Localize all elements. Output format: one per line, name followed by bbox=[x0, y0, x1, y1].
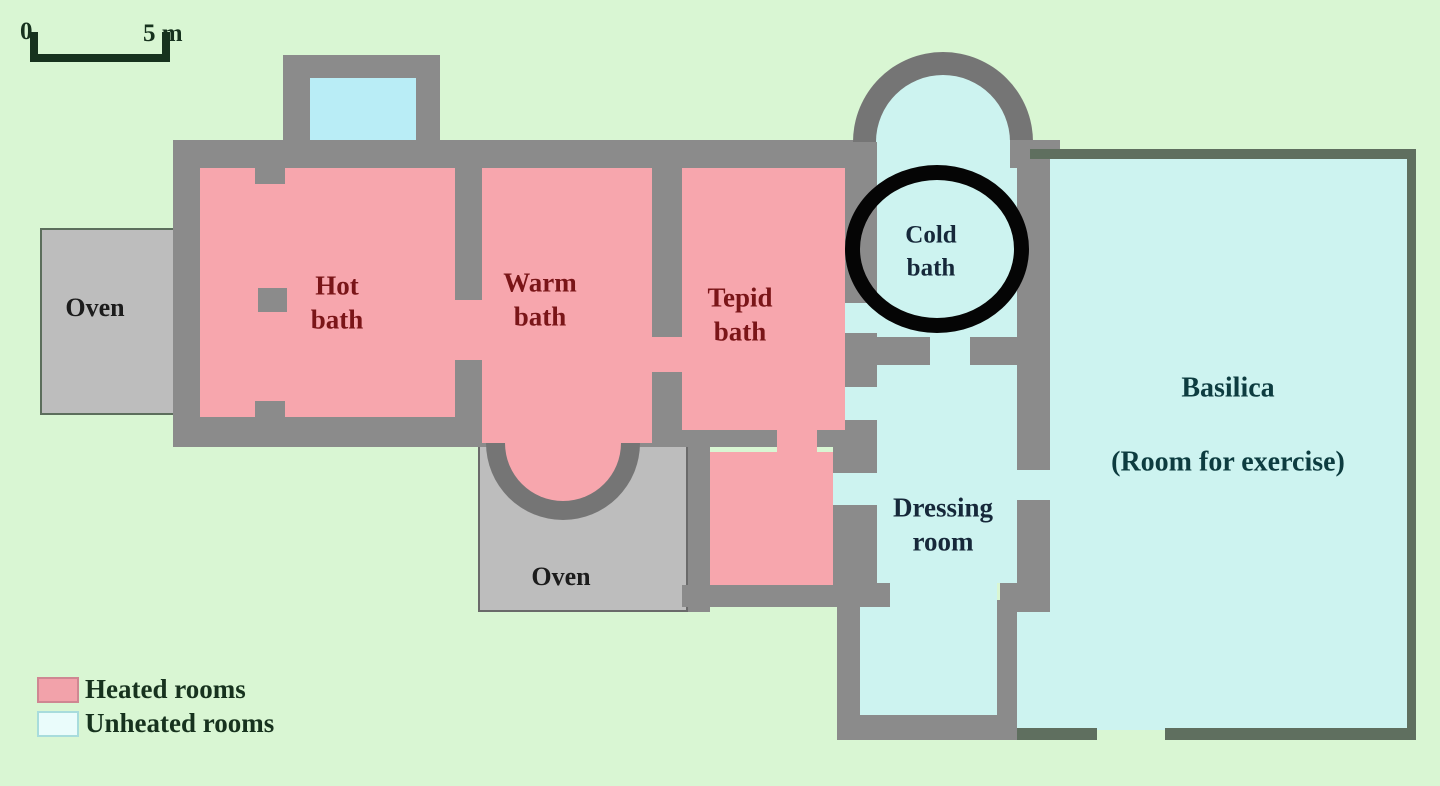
wall-basilica-right bbox=[1407, 149, 1416, 740]
basilica-room-extension bbox=[1017, 612, 1050, 728]
door-warm-to-tepid bbox=[652, 337, 682, 372]
cold-bath-label-line1: Cold bbox=[905, 220, 956, 253]
dressing-room-label-line1: Dressing bbox=[893, 491, 993, 525]
dressing-room-label: Dressing room bbox=[893, 491, 993, 559]
bath-house-floor-plan: Oven Hot bath Warm bath Tepid bath Cold … bbox=[0, 0, 1440, 786]
legend-unheated-label: Unheated rooms bbox=[85, 708, 274, 739]
warm-bath-label-line2: bath bbox=[503, 300, 577, 334]
door-tepid-to-dressing bbox=[845, 387, 877, 420]
door-cold-bath-to-dressing bbox=[930, 337, 970, 365]
legend-swatch-heated bbox=[37, 677, 79, 703]
door-heated-room-to-dressing bbox=[833, 473, 877, 505]
scale-bar-line bbox=[30, 54, 170, 62]
warm-bath-label: Warm bath bbox=[503, 266, 577, 334]
wall-dressing-left bbox=[833, 447, 877, 590]
wall-basilica-bottom-left bbox=[1017, 728, 1097, 740]
tepid-bath-label: Tepid bath bbox=[707, 281, 772, 349]
dressing-room-label-line2: room bbox=[893, 525, 993, 559]
scale-bar-tick-left bbox=[30, 32, 38, 62]
wall-basilica-top bbox=[1030, 149, 1415, 159]
hot-bath-label-line2: bath bbox=[311, 303, 364, 337]
wall-alcove-right bbox=[997, 600, 1017, 715]
scale-bar-tick-right bbox=[162, 32, 170, 62]
door-dressing-to-basilica bbox=[1017, 470, 1050, 500]
hot-bath-wall-stub-top bbox=[255, 168, 285, 184]
wall-basilica-bottom-right bbox=[1165, 728, 1415, 740]
hot-bath-wall-stub-bottom bbox=[255, 401, 285, 417]
oven-bottom-label: Oven bbox=[531, 561, 590, 594]
hot-bath-label: Hot bath bbox=[311, 269, 364, 337]
basilica-label: Basilica bbox=[1181, 371, 1274, 406]
hot-bath-pillar bbox=[258, 288, 287, 312]
tepid-bath-label-line2: bath bbox=[707, 315, 772, 349]
door-tepid-to-heated-room bbox=[777, 430, 817, 454]
wall-dressing-basilica bbox=[1017, 140, 1050, 612]
legend-swatch-unheated bbox=[37, 711, 79, 737]
oven-left-label: Oven bbox=[65, 292, 124, 325]
wall-alcove-bottom bbox=[837, 715, 1017, 740]
legend-heated-label: Heated rooms bbox=[85, 674, 246, 705]
door-hot-to-warm bbox=[455, 300, 482, 360]
cold-bath-label: Cold bath bbox=[905, 220, 956, 285]
warm-bath-label-line1: Warm bbox=[503, 266, 577, 300]
small-heated-room bbox=[710, 452, 833, 585]
hot-bath-label-line1: Hot bbox=[311, 269, 364, 303]
cold-bath-label-line2: bath bbox=[905, 252, 956, 285]
tepid-bath-label-line1: Tepid bbox=[707, 281, 772, 315]
basilica-subtitle-label: (Room for exercise) bbox=[1111, 445, 1345, 480]
